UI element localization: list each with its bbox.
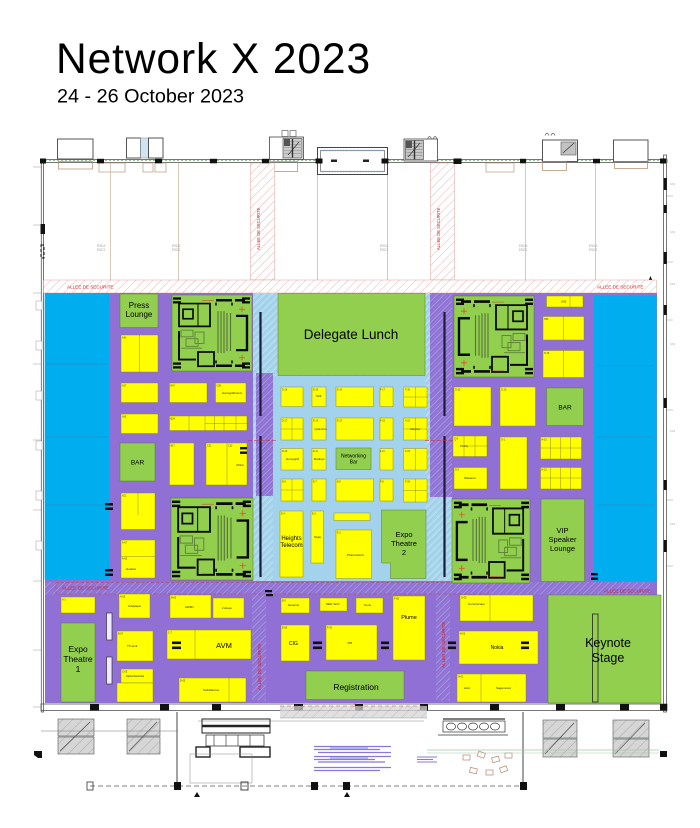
svg-text:Alpha Networks: Alpha Networks: [126, 674, 145, 678]
svg-text:G-05: G-05: [461, 597, 467, 600]
svg-text:E9C3: E9C3: [589, 248, 597, 252]
svg-text:E9C3: E9C3: [380, 248, 388, 252]
svg-text:L'obeya: L'obeya: [222, 606, 232, 610]
svg-text:C22: C22: [228, 445, 233, 448]
svg-text:Network X 2023: Network X 2023: [56, 36, 371, 83]
svg-text:E-5: E-5: [282, 600, 286, 603]
svg-text:B24: B24: [171, 418, 176, 421]
svg-text:CIG: CIG: [289, 641, 298, 647]
svg-text:A41: A41: [122, 337, 127, 340]
svg-text:Theatre: Theatre: [391, 539, 417, 548]
svg-text:A26: A26: [561, 300, 567, 304]
svg-text:H-15: H-15: [542, 439, 548, 442]
svg-text:ALLEE DE SECURITE: ALLEE DE SECURITE: [604, 589, 650, 594]
svg-text:Expo: Expo: [68, 644, 88, 654]
svg-text:103: 103: [670, 230, 675, 234]
svg-text:Tejas: Tejas: [314, 535, 322, 539]
svg-text:Cene: Cene: [364, 603, 372, 607]
svg-text:B47: B47: [171, 385, 176, 388]
svg-text:E-7: E-7: [313, 481, 317, 484]
svg-text:A-1: A-1: [62, 599, 66, 602]
svg-text:ALLEE DE SECURITE: ALLEE DE SECURITE: [441, 622, 446, 668]
svg-text:E-3: E-3: [312, 513, 316, 516]
svg-text:103: 103: [670, 282, 675, 286]
svg-text:F-11: F-11: [380, 450, 385, 453]
svg-text:Radisys: Radisys: [314, 457, 325, 461]
svg-text:H-19: H-19: [544, 352, 550, 355]
svg-text:Pharrowtech: Pharrowtech: [347, 553, 364, 557]
svg-text:B-05: B-05: [171, 597, 177, 600]
svg-text:B17: B17: [171, 445, 176, 448]
svg-text:Sagemcom: Sagemcom: [496, 686, 512, 690]
svg-text:Keynote: Keynote: [585, 636, 631, 650]
svg-text:Telecom: Telecom: [280, 543, 302, 549]
svg-text:Telit: Telit: [316, 394, 322, 398]
svg-text:ALLEE DE SECURITE: ALLEE DE SECURITE: [256, 207, 261, 250]
svg-text:E-4: E-4: [281, 513, 285, 516]
svg-text:C21: C21: [207, 445, 212, 448]
svg-text:Stage: Stage: [592, 651, 625, 665]
svg-text:103: 103: [670, 429, 675, 433]
svg-text:D-17: D-17: [282, 420, 288, 423]
svg-text:F-18: F-18: [405, 450, 411, 453]
svg-text:103: 103: [670, 522, 675, 526]
svg-text:Azot: Azot: [464, 686, 470, 690]
svg-text:H-12: H-12: [542, 469, 548, 472]
svg-text:Bar: Bar: [350, 460, 358, 466]
svg-text:E-8: E-8: [337, 481, 341, 484]
svg-text:Commscope: Commscope: [468, 602, 485, 606]
svg-text:A33: A33: [122, 416, 127, 419]
svg-text:Wavenet: Wavenet: [464, 476, 476, 480]
svg-text:1: 1: [76, 664, 81, 674]
svg-text:D-03: D-03: [180, 680, 186, 683]
svg-text:ALLEE DE SECURITE: ALLEE DE SECURITE: [62, 586, 108, 591]
svg-text:HomegridForum: HomegridForum: [222, 391, 243, 395]
svg-text:Delegate Lunch: Delegate Lunch: [304, 327, 399, 342]
svg-text:Theatre: Theatre: [63, 654, 93, 664]
svg-text:Genexis: Genexis: [288, 603, 300, 607]
svg-text:A-03: A-03: [120, 596, 126, 599]
svg-text:D-16: D-16: [282, 389, 288, 392]
svg-text:G-16: G-16: [501, 389, 507, 392]
svg-text:A21: A21: [122, 495, 127, 498]
svg-text:F-26: F-26: [405, 481, 411, 484]
svg-text:D-9: D-9: [282, 481, 287, 484]
svg-text:D-10: D-10: [282, 450, 288, 453]
svg-text:Quantum: Quantum: [315, 427, 328, 431]
svg-text:H-03: H-03: [460, 633, 466, 636]
svg-text:Africa: Africa: [236, 463, 244, 467]
svg-text:103: 103: [670, 342, 675, 346]
svg-text:Lounge: Lounge: [550, 544, 575, 553]
svg-text:F-17: F-17: [380, 389, 386, 392]
svg-text:C-7: C-7: [168, 632, 173, 635]
svg-text:F-15: F-15: [380, 420, 386, 423]
svg-text:A-05: A-05: [122, 558, 128, 561]
svg-text:Heights: Heights: [281, 536, 301, 542]
svg-text:G-2: G-2: [455, 469, 460, 472]
svg-text:C-05: C-05: [122, 671, 128, 674]
svg-text:A37: A37: [122, 385, 127, 388]
svg-text:F-30: F-30: [405, 389, 411, 392]
svg-text:ALLEE DE SECURITE: ALLEE DE SECURITE: [436, 207, 441, 250]
svg-text:E-13: E-13: [313, 420, 319, 423]
svg-text:E9C3: E9C3: [172, 248, 180, 252]
svg-text:BAR: BAR: [558, 405, 572, 412]
svg-text:E-14: E-14: [337, 389, 343, 392]
svg-text:E-11: E-11: [313, 450, 319, 453]
svg-text:SoftAtHome: SoftAtHome: [203, 688, 220, 692]
svg-text:B-07: B-07: [118, 633, 124, 636]
svg-text:TP-Link: TP-Link: [127, 644, 138, 648]
svg-text:C28: C28: [217, 385, 222, 388]
svg-text:Homegrid: Homegrid: [286, 457, 299, 461]
svg-text:F-03: F-03: [327, 627, 333, 630]
svg-text:E-12: E-12: [337, 420, 343, 423]
svg-text:Plume: Plume: [401, 615, 417, 621]
svg-text:E-16: E-16: [313, 389, 319, 392]
svg-text:E-1: E-1: [337, 532, 341, 535]
svg-text:Lounge: Lounge: [126, 310, 153, 319]
svg-text:2: 2: [402, 548, 406, 557]
svg-text:VIP: VIP: [556, 526, 568, 535]
svg-text:Priority: Priority: [460, 444, 469, 448]
svg-text:AW3N: AW3N: [185, 605, 194, 609]
svg-text:E9C3: E9C3: [519, 248, 527, 252]
svg-text:Registration: Registration: [333, 682, 379, 692]
svg-text:AVM: AVM: [216, 641, 232, 650]
svg-text:103: 103: [670, 182, 675, 186]
svg-text:G-12: G-12: [455, 389, 461, 392]
svg-text:ALLEE DE SECURITE: ALLEE DE SECURITE: [67, 285, 113, 290]
svg-text:BAR: BAR: [131, 460, 145, 467]
svg-text:H23: H23: [544, 318, 549, 321]
svg-text:ALLEE DE SECURITE: ALLEE DE SECURITE: [597, 285, 643, 290]
svg-text:Expo: Expo: [395, 530, 412, 539]
svg-text:A-07: A-07: [122, 542, 128, 545]
svg-text:F-05: F-05: [394, 598, 400, 601]
svg-text:E-05: E-05: [282, 627, 288, 630]
svg-text:Nokia: Nokia: [491, 645, 504, 651]
svg-text:G-6: G-6: [454, 438, 459, 441]
svg-text:E9C3: E9C3: [97, 248, 105, 252]
svg-text:G-1: G-1: [501, 439, 506, 442]
svg-text:H-01: H-01: [458, 676, 464, 679]
svg-text:JT8: JT8: [347, 641, 352, 645]
svg-text:Analytique: Analytique: [128, 604, 142, 608]
svg-text:Huawei: Huawei: [126, 567, 136, 571]
svg-text:Press: Press: [129, 301, 149, 310]
svg-text:24 - 26 October 2023: 24 - 26 October 2023: [57, 86, 244, 108]
svg-text:Vantiva: Vantiva: [410, 427, 420, 431]
svg-text:Speaker: Speaker: [549, 535, 577, 544]
svg-text:SEG Tech: SEG Tech: [326, 602, 340, 606]
svg-text:F-22: F-22: [405, 420, 411, 423]
svg-text:ALLEE DE SECURITE: ALLEE DE SECURITE: [257, 644, 262, 690]
